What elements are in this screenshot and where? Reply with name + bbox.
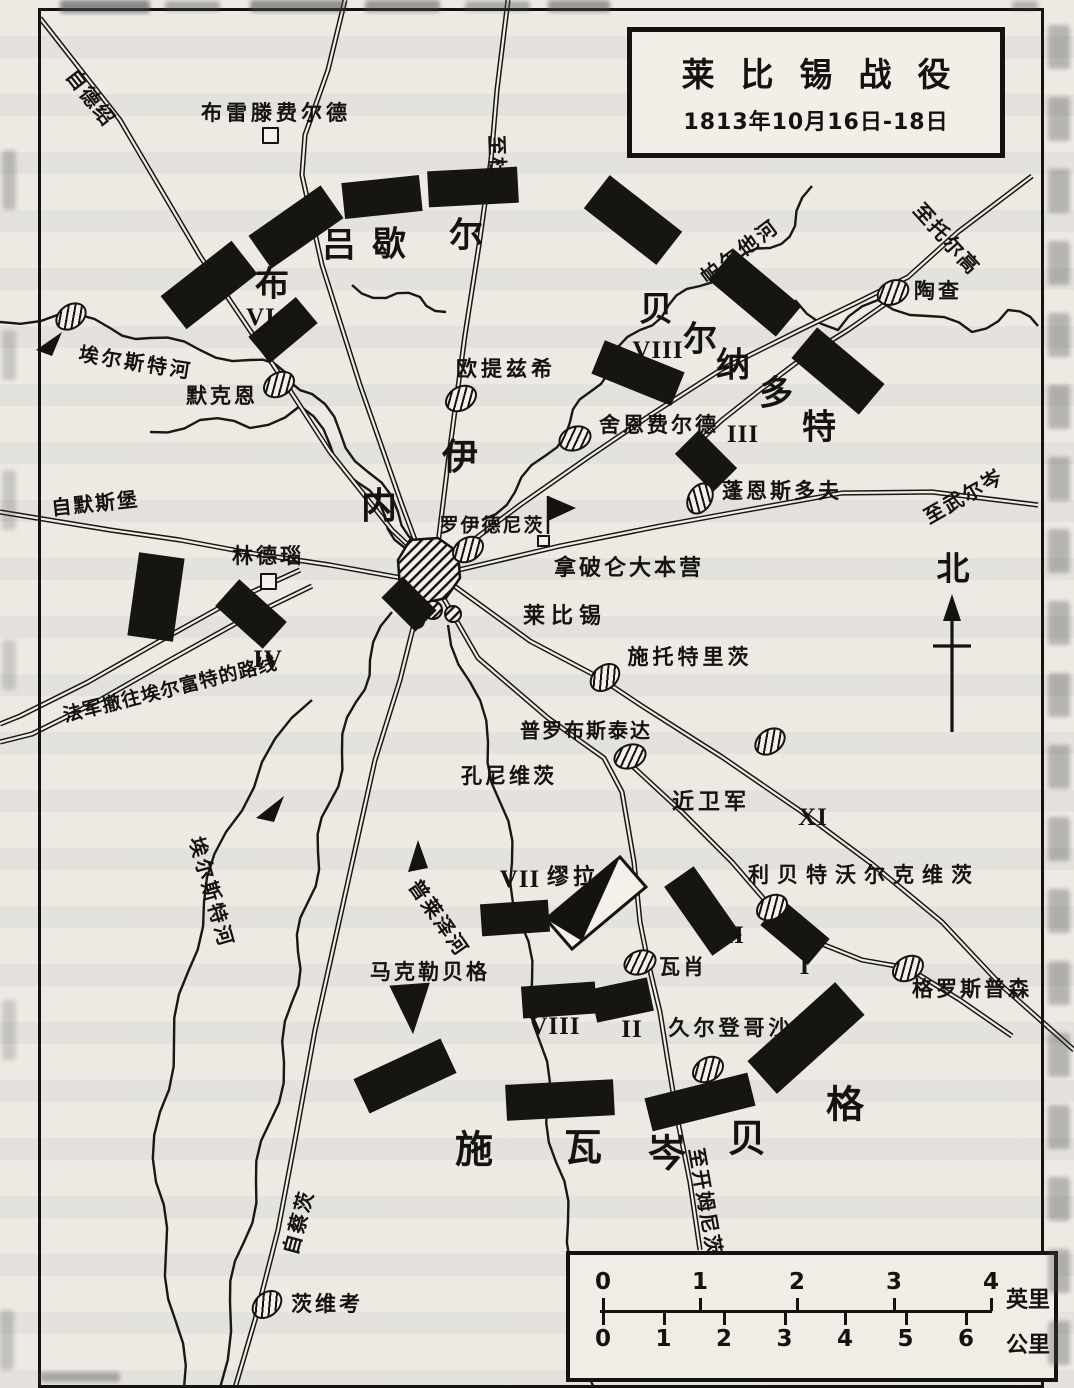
leipzig-battle-map: 布雷滕费尔德欧提兹希舍恩费尔德陶查蓬恩斯多夫罗伊德尼茨拿破仑大本营莱比锡施托特里… [0,0,1074,1388]
title-box: 莱比锡战役 1813年10月16日-18日 [627,27,1005,158]
km-tick-label: 0 [595,1326,611,1352]
unit-block [505,1079,615,1121]
mile-tick-label: 0 [595,1269,611,1295]
commander-bluecher: 尔 [449,208,483,257]
corps-numeral: II [621,1016,642,1044]
km-tick [663,1312,666,1325]
corps-numeral: XI [715,922,745,950]
label-wachau: 瓦肖 [659,951,707,981]
km-tick-label: 4 [837,1326,853,1352]
commander-bernadotte: 尔 [683,312,717,361]
miles-unit-label: 英里 [1006,1282,1050,1314]
label-grosspoesna: 格罗斯普森 [912,973,1032,1003]
km-tick-label: 5 [897,1326,913,1352]
label-to-dueben: 至杜本 [483,135,514,202]
mile-tick [602,1298,605,1311]
commander-ney: 内 [361,477,397,529]
corps-numeral: VI [246,304,276,332]
mile-tick-label: 3 [886,1269,902,1295]
scale-bar: 012340123456 英里 公里 [566,1251,1058,1382]
km-tick-label: 6 [958,1326,974,1352]
label-zwenkau: 茨维考 [291,1288,363,1318]
label-probstheida: 普罗布斯泰达 [520,715,652,744]
label-napoleon-hq: 拿破仑大本营 [554,550,704,582]
commander-bernadotte: 纳 [716,338,750,387]
commander-schwarzenberg: 格 [826,1074,864,1129]
label-guard: 近卫军 [672,784,750,816]
km-tick [844,1312,847,1325]
corps-numeral: IV [253,646,283,674]
km-tick [965,1312,968,1325]
corps-numeral: III [727,421,759,449]
north-arrow-icon [933,594,971,732]
label-lindenau: 林德瑙 [232,540,304,570]
mile-tick [699,1298,702,1311]
mile-tick [893,1298,896,1311]
label-breitenfeld: 布雷滕费尔德 [201,97,351,127]
commander-bernadotte: 多 [759,366,793,415]
commander-bernadotte: 特 [802,400,836,449]
km-tick [602,1312,605,1325]
commander-bluecher: 布 [255,257,289,306]
commander-schwarzenberg: 贝 [728,1108,766,1163]
commander-schwarzenberg: 施 [455,1119,493,1174]
corps-numeral: I [800,953,811,981]
unit-block [480,900,550,937]
label-reudnitz: 罗伊德尼茨 [439,511,544,538]
label-taucha: 陶查 [914,275,962,305]
north-label: 北 [937,542,970,590]
label-markkleeberg: 马克勒贝格 [370,956,490,986]
km-tick-label: 3 [776,1326,792,1352]
label-eutritzsch: 欧提兹希 [456,353,556,383]
breitenfeld-town-icon [262,127,279,144]
corps-numeral: VIII [529,1013,580,1041]
commander-bluecher: 歇 [372,217,406,266]
km-tick [905,1312,908,1325]
label-moeckern: 默克恩 [186,380,258,410]
mile-tick-label: 2 [789,1269,805,1295]
mile-tick [990,1298,993,1311]
mile-tick [796,1298,799,1311]
label-connewitz: 孔尼维茨 [461,760,557,790]
label-murat: 缪拉 [547,859,599,891]
km-tick [723,1312,726,1325]
mile-tick-label: 1 [692,1269,708,1295]
commander-ney: 伊 [442,428,478,480]
label-stoetteritz: 施托特里茨 [628,641,753,671]
label-liebertwolkwitz: 利贝特沃尔克维茨 [748,859,980,889]
lindenau-town-icon [260,573,277,590]
mile-tick-label: 4 [983,1269,999,1295]
commander-bernadotte: 贝 [639,282,673,331]
label-gueldengossa: 久尔登哥沙 [669,1012,794,1042]
commander-bluecher: 吕 [322,218,356,267]
km-tick [784,1312,787,1325]
map-title: 莱比锡战役 [632,48,1000,96]
label-paunsdorf: 蓬恩斯多夫 [722,475,842,505]
corps-numeral: VIII [632,337,683,365]
corps-numeral: XI [798,804,828,832]
km-tick-label: 1 [655,1326,671,1352]
corps-numeral: VII [500,866,541,894]
label-leipzig: 莱比锡 [523,598,607,630]
km-unit-label: 公里 [1006,1327,1050,1359]
km-tick-label: 2 [716,1326,732,1352]
commander-schwarzenberg: 瓦 [564,1117,602,1172]
map-date: 1813年10月16日-18日 [632,104,1000,136]
commander-schwarzenberg: 岑 [648,1123,686,1178]
label-schoenefeld: 舍恩费尔德 [599,409,719,439]
